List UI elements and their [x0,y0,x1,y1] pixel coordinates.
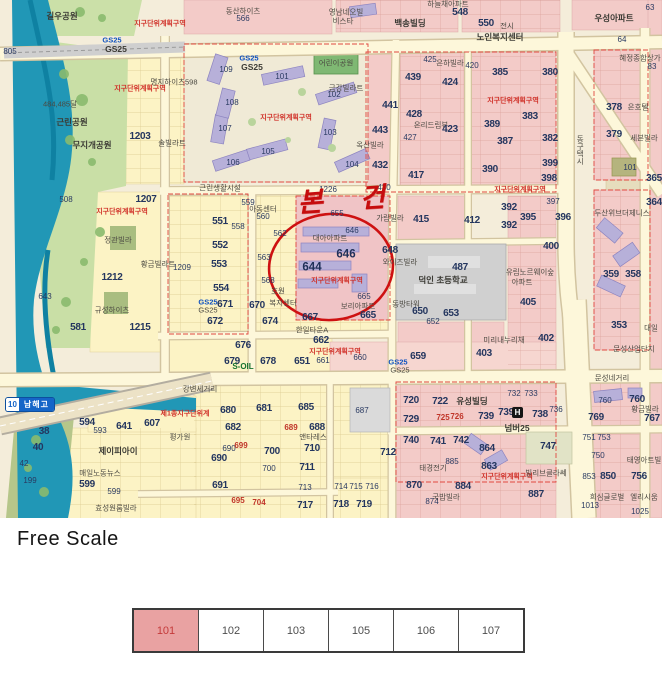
map-label: 720 [403,396,419,406]
map-label: 713 [298,484,311,492]
map-label: 432 [372,161,388,171]
map-label: GS25 [198,306,217,314]
map-label: 667 [302,313,318,323]
map-label: 385 [492,68,508,78]
map-label: 756 [631,472,647,482]
map-label: 황금빌라트 [141,260,176,268]
map-label: 487 [452,263,468,273]
map-label: 40 [33,443,44,453]
map-label: 399 [542,159,558,169]
map-label: 379 [606,130,622,140]
map-label: 유림노르웨이숲 [506,268,554,276]
map-label: 593 [93,427,106,435]
map-label: 395 [520,213,536,223]
map-label: 646 [345,227,358,235]
map-label: 1212 [101,273,122,283]
map-label: 428 [406,110,422,120]
map-label: 568 [261,277,274,285]
appraisal-map-page: 길우공원805GS25GS25지구단위계획구역명지하이츠598근린공원484,4… [0,0,662,700]
map-label: 740 [403,436,419,446]
map-label: 652 [426,318,439,326]
map-label: 353 [611,321,627,331]
map-label: 108 [225,99,238,107]
sheet-cell-106: 106 [393,610,458,651]
map-label: 희심글로벌 [590,493,625,501]
map-label: 매일노동뉴스 [79,469,120,477]
map-label: 551 [212,217,228,227]
map-label: 554 [213,284,229,294]
map-label: 548 [452,8,468,18]
map-label: 지구단위계획구역 [494,187,546,194]
map-label: 760 [598,397,611,405]
map-label: 문성네거리 [595,374,630,382]
map-label: 389 [484,120,500,130]
map-label: GS25 [102,36,121,44]
map-label: 은호텔 [628,103,649,111]
map-label: 365 [646,174,662,184]
map-label: 751 [582,434,595,442]
map-label: 676 [235,341,251,351]
subject-property-label: 본 건 [296,174,400,220]
map-label: 엘리시움 [630,493,658,501]
map-label: 364 [646,198,662,208]
map-label: 와이즈빌라 [383,258,418,266]
map-label: 유성빌딩 [456,397,487,406]
map-label: 712 [380,448,396,458]
map-label: 562 [273,230,286,238]
map-label: 전시 [500,22,514,30]
map-label: 1203 [129,132,150,142]
map-label: 지구단위계획구역 [311,278,363,285]
map-label: 420 [465,62,478,70]
map-label: 412 [464,216,480,226]
map-label: 863 [481,462,497,472]
map-label: 106 [226,159,239,167]
map-label: 104 [345,161,358,169]
map-label: 우성아파트 [594,14,633,23]
map-label: 솔빌라트 [158,139,186,147]
map-label: 508 [59,196,72,204]
map-label: 비스타 [333,17,354,25]
map-label: 641 [116,422,132,432]
map-label: 지구단위계획구역 [260,115,312,122]
map-label: 691 [212,481,228,491]
map-label: 699 [234,442,247,450]
map-label: 지구단위계획구역 [96,209,148,216]
map-label: 718 [333,500,349,510]
map-label: 665 [360,311,376,321]
map-label: GS25 [105,45,127,54]
map-label: GS25 [239,54,258,62]
map-label: 643 [38,293,51,301]
map-label: 689 [284,424,297,432]
map-label: 382 [542,134,558,144]
sheet-cell-105: 105 [328,610,393,651]
map-label: 732 [507,390,520,398]
map-label: 영남네오빌 [329,8,364,16]
map-label: 보리아파트 [341,302,376,310]
expressway-number: 10 [6,398,19,411]
map-label: 효성원룸빌라 [95,504,136,512]
map-label: 호원 [271,287,285,295]
map-label: 42 [20,460,29,468]
map-label: 옥산빌라 [356,141,384,149]
map-label: 빌리브클라쎄 [525,469,566,477]
map-label: 750 [591,452,604,460]
map-label: 563 [257,254,270,262]
map-label: 719 [356,500,372,510]
sheet-index-table: 101 102 103 105 106 107 [132,608,525,653]
map-label: 695 [231,497,244,505]
sheet-cell-107: 107 [458,610,523,651]
map-label: 722 [432,397,448,407]
map-label: 700 [264,447,280,457]
map-label: 733 [524,390,537,398]
map-panel: 길우공원805GS25GS25지구단위계획구역명지하이츠598근린공원484,4… [0,0,662,518]
map-label: 392 [501,221,517,231]
map-label: 1209 [173,264,191,272]
map-label: 441 [382,101,398,111]
map-label: 674 [262,317,278,327]
map-label: 혜정종합상가 [619,54,660,62]
map-label: 어린이공원 [319,59,354,67]
map-label: 동구택시 [576,135,584,165]
map-label: 805 [3,48,16,56]
map-label: 태경전기 [419,464,447,472]
map-label: 392 [501,203,517,213]
map-label: 710 [304,444,320,454]
map-label: 660 [353,354,366,362]
map-label: 대아아파트 [313,234,348,242]
map-label: 425 [423,56,436,64]
map-label: 651 [294,357,310,367]
map-label: 83 [648,63,657,71]
map-label: 672 [207,317,223,327]
map-label: 태영아트빌 [627,456,662,464]
map-label: 850 [600,472,616,482]
map-label: 423 [442,125,458,135]
map-label: 681 [256,404,272,414]
map-label: 노인복지센터 [477,33,524,42]
map-label: 753 [597,434,610,442]
map-label: 359 [603,270,619,280]
map-label: 700 [262,465,275,473]
map-label: 지구단위계획구역 [487,98,539,105]
map-label: 규성하이츠 [95,306,130,314]
map-label: 국밥빌라 [432,493,460,501]
map-label: 738 [532,410,548,420]
map-label: 미리내누리채 [483,336,524,344]
map-label: 101 [623,164,636,172]
map-label: 390 [482,165,498,175]
map-label: 769 [588,413,604,423]
map-label: 1025 [631,508,649,516]
map-label: 690 [211,454,227,464]
map-label: 739 [478,412,494,422]
map-label: 653 [443,309,459,319]
map-label: 두산위브더제니스 [594,209,649,217]
map-label: 670 [249,301,265,311]
map-label: 199 [23,477,36,485]
map-label: 484,485달 [43,100,77,108]
map-label: 63 [646,4,655,12]
map-label: 405 [520,298,536,308]
map-label: 714 [334,483,347,491]
map-label: 대일 [644,324,658,332]
hotel-icon: H [512,407,523,418]
map-label: 659 [410,352,426,362]
map-label: 1013 [581,502,599,510]
map-label: 398 [541,174,557,184]
map-label: 복지센터 [269,299,297,307]
map-label: 644 [302,262,321,274]
map-label: GS25 [241,63,263,72]
map-label: 725 [436,414,449,422]
map-label: 제이피아이 [98,447,137,456]
map-label: 662 [313,336,329,346]
map-label: 678 [260,357,276,367]
map-label: 665 [357,293,370,301]
map-label: 415 [413,215,429,225]
map-label: 726 [450,413,463,421]
map-label: 덕인 초등학교 [418,276,467,285]
map-label: 671 [217,300,233,310]
map-label: 378 [606,103,622,113]
map-label-layer: 길우공원805GS25GS25지구단위계획구역명지하이츠598근린공원484,4… [0,0,662,518]
map-label: 383 [522,112,538,122]
map-label: 736 [549,406,562,414]
map-label: 400 [543,242,559,252]
map-label: 661 [316,357,329,365]
map-label: 443 [372,126,388,136]
map-label: 729 [403,415,419,425]
map-label: 397 [546,198,559,206]
map-label: 무지개공원 [72,141,111,150]
map-label: 64 [618,36,627,44]
map-label: 853 [582,473,595,481]
map-label: 864 [479,444,495,454]
map-label: 105 [261,148,274,156]
map-label: 근린공원 [56,118,87,127]
map-label: 38 [39,427,50,437]
map-label: 870 [406,481,422,491]
map-label: 107 [218,125,231,133]
map-label: 424 [442,78,458,88]
map-label: 599 [79,480,95,490]
map-label: 402 [538,334,554,344]
map-label: 648 [382,246,398,256]
map-label: 715 [349,483,362,491]
map-label: 687 [355,407,368,415]
map-label: 지구단위계획구역 [114,86,166,93]
map-label: 717 [297,501,313,511]
map-label: 646 [336,249,355,261]
map-label: 581 [70,323,86,333]
map-label: 넘버25 [504,424,529,433]
sheet-cell-102: 102 [198,610,263,651]
map-label: 아파트 [512,278,533,286]
map-label: 552 [212,241,228,251]
map-label: 685 [298,403,314,413]
map-label: 제1종지구단위계 [161,411,210,418]
map-label: 1207 [135,195,156,205]
map-label: 명지하이츠598 [150,78,197,86]
map-label: 417 [408,171,424,181]
map-label: 한일타운A [296,326,329,334]
sheet-cell-103: 103 [263,610,328,651]
map-label: 은하빌라 [436,59,464,67]
map-label: 황금빌라 [631,405,659,413]
map-label: 길우공원 [46,12,77,21]
map-label: 358 [625,270,641,280]
map-label: 711 [299,463,314,473]
map-label: 566 [236,15,249,23]
map-label: 강변세거리 [183,385,218,393]
map-label: 742 [453,436,469,446]
map-label: 885 [445,458,458,466]
map-label: 741 [430,437,446,447]
map-label: 607 [144,419,160,429]
map-label: 평가원 [170,433,191,441]
map-label: 백송빌딩 [394,19,425,28]
map-label: 403 [476,349,492,359]
map-label: 문성산업단지 [613,345,654,353]
map-label: 558 [231,223,244,231]
map-label: 세븐빌라 [630,134,658,142]
map-label: 650 [412,307,428,317]
map-label: 704 [252,499,265,507]
map-label: 101 [275,73,288,81]
map-label: 682 [225,423,241,433]
map-label: 근린생활시설 [199,184,240,192]
map-label: 887 [528,490,544,500]
sheet-cell-101: 101 [134,610,198,651]
map-label: GS25 [390,366,409,374]
map-label: 103 [323,129,336,137]
expressway-name: 남해고 [19,398,54,411]
map-label: 지구단위계획구역 [134,21,186,28]
map-label: 716 [365,483,378,491]
map-label: 767 [644,414,660,424]
map-label: 560 [256,213,269,221]
map-label: 387 [497,137,513,147]
map-label: 정관빌라 [104,236,132,244]
map-label: 109 [219,66,232,74]
map-label: 747 [540,442,556,452]
map-label: 599 [107,488,120,496]
map-label: 396 [555,213,571,223]
map-label: 884 [455,482,471,492]
expressway-sign: 10 남해고 [6,398,54,411]
map-label: 380 [542,68,558,78]
map-label: 금강빌라트 [329,84,364,92]
map-label: 앤타레스 [299,433,327,441]
map-label: 가람빌라 [376,214,404,222]
map-label: 1215 [129,323,150,333]
map-label: 550 [478,19,494,29]
map-label: 680 [220,406,236,416]
map-label: S-OIL [232,363,253,371]
scale-note: Free Scale [17,528,119,551]
map-label: 427 [403,134,416,142]
map-label: 553 [211,260,227,270]
map-label: 439 [405,73,421,83]
